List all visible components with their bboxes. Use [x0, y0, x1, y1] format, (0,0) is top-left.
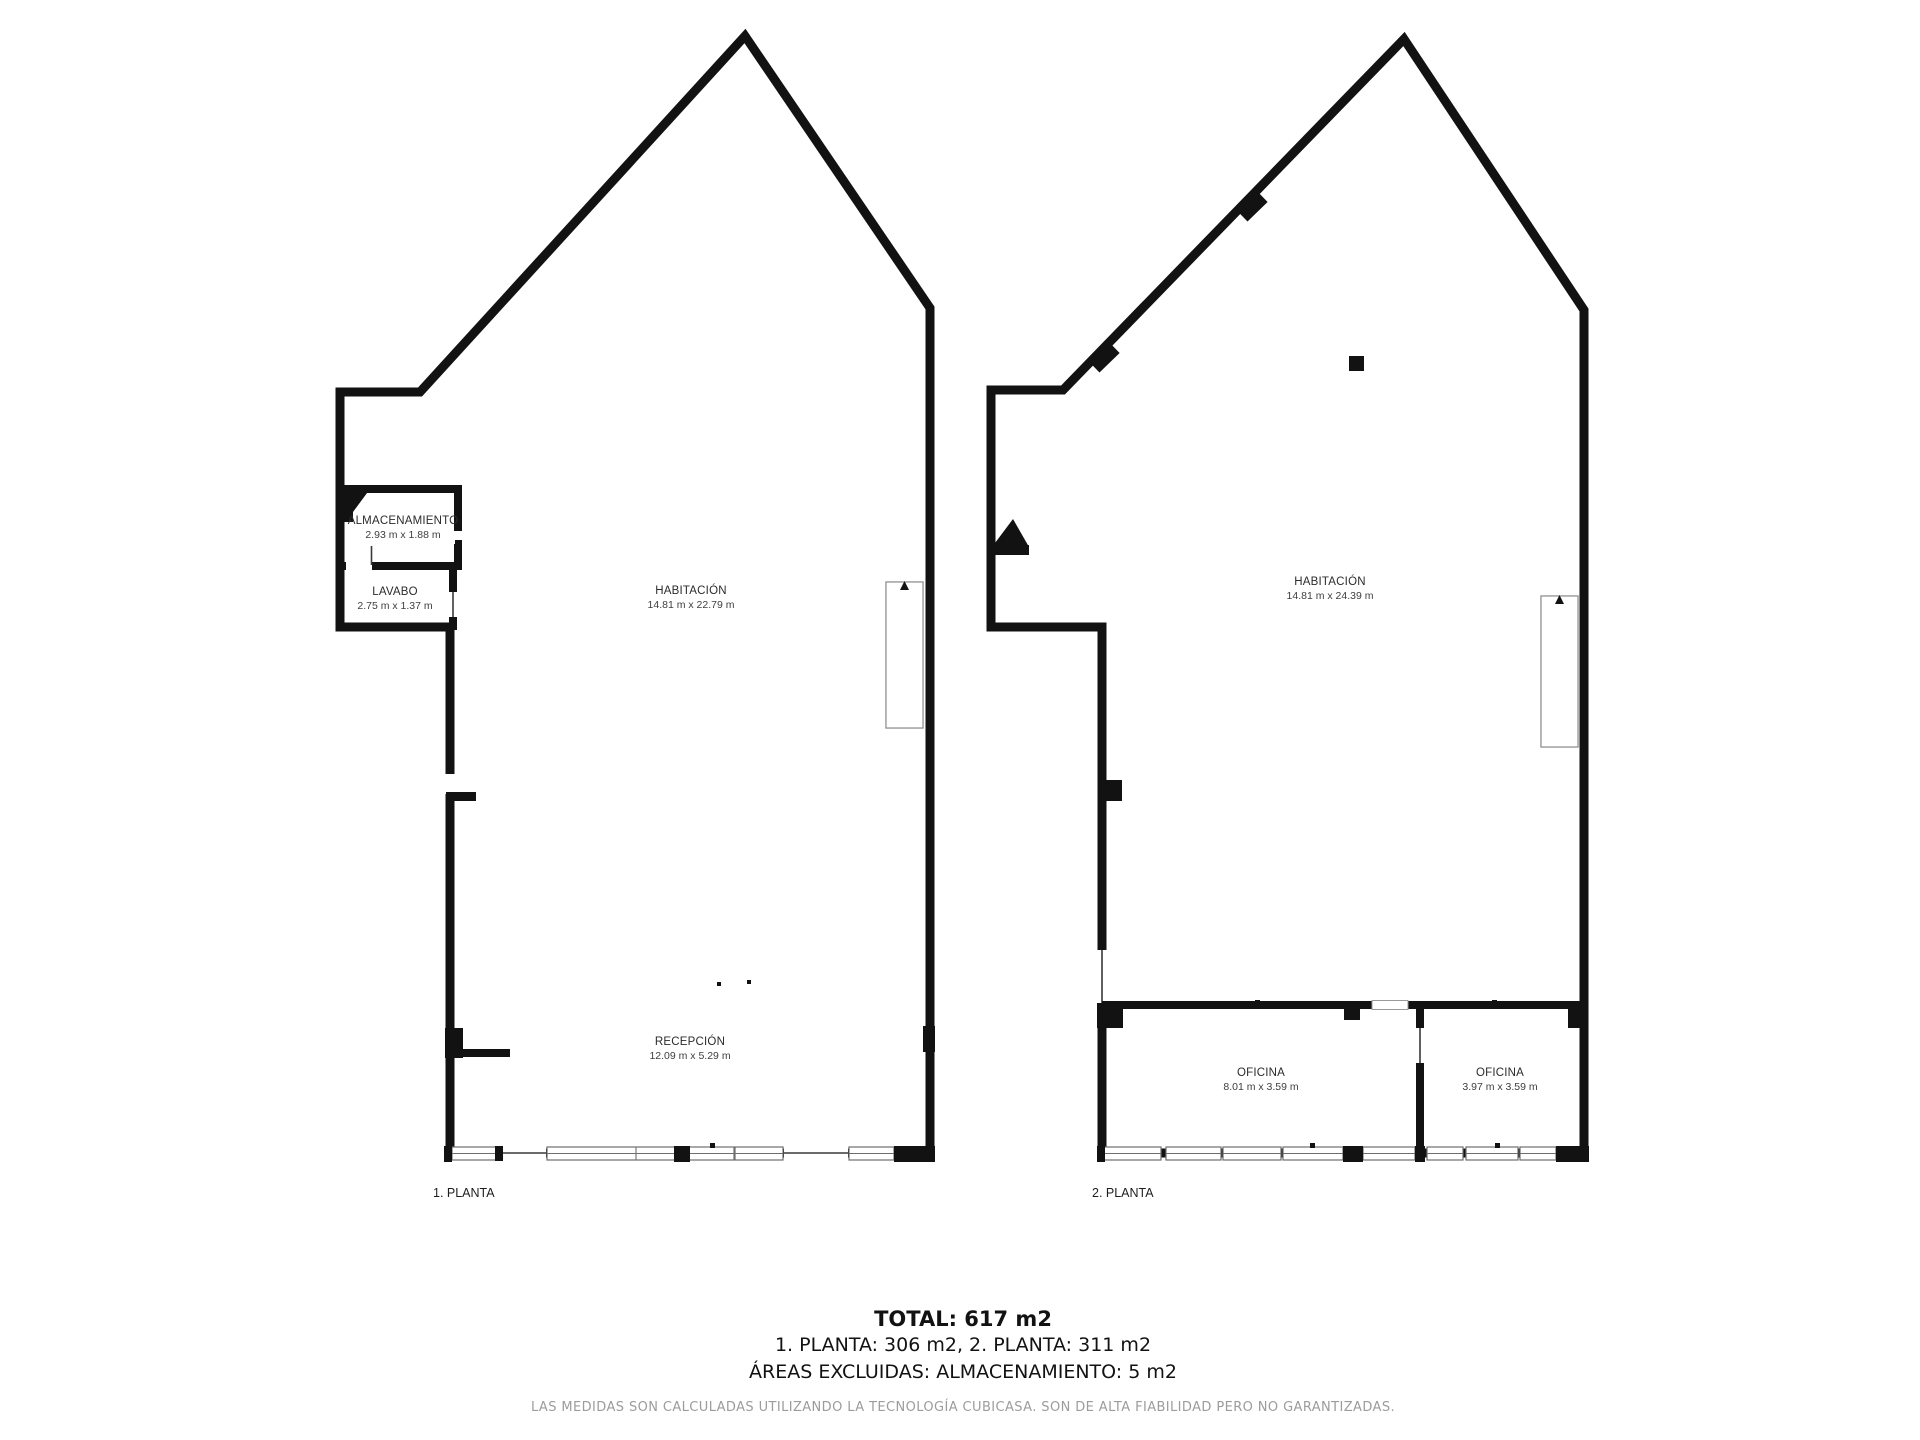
excluded-areas: ÁREAS EXCLUIDAS: ALMACENAMIENTO: 5 m2 [749, 1359, 1177, 1386]
floor1-entry-door [674, 1146, 690, 1162]
total-area: TOTAL: 617 m2 [749, 1306, 1177, 1332]
room-label-oficina-1: OFICINA 8.01 m x 3.59 m [1223, 1066, 1298, 1095]
room-label-habitacion-2: HABITACIÓN 14.81 m x 24.39 m [1287, 575, 1374, 604]
floor2-windows [1104, 1147, 1556, 1160]
floor-plans-canvas [0, 0, 1920, 1440]
room-label-habitacion-1: HABITACIÓN 14.81 m x 22.79 m [648, 584, 735, 613]
stairs-icon [1541, 595, 1578, 747]
floor1-wall-stub [450, 1049, 510, 1057]
floor-label-1: 1. PLANTA [433, 1186, 495, 1200]
floor1-pillar [923, 1026, 935, 1052]
disclaimer-text: LAS MEDIDAS SON CALCULADAS UTILIZANDO LA… [531, 1400, 1395, 1415]
stairs-icon [886, 581, 923, 728]
floor1-door-opening [444, 774, 456, 794]
floor-plan-page: ALMACENAMIENTO 2.93 m x 1.88 m LAVABO 2.… [0, 0, 1920, 1440]
floor-label-2: 2. PLANTA [1092, 1186, 1154, 1200]
room-label-recepcion: RECEPCIÓN 12.09 m x 5.29 m [649, 1035, 730, 1064]
room-label-oficina-2: OFICINA 3.97 m x 3.59 m [1462, 1066, 1537, 1095]
room-label-almacenamiento: ALMACENAMIENTO 2.93 m x 1.88 m [348, 514, 459, 543]
floor-areas: 1. PLANTA: 306 m2, 2. PLANTA: 311 m2 [749, 1332, 1177, 1359]
room-label-lavabo: LAVABO 2.75 m x 1.37 m [357, 585, 432, 614]
area-summary: TOTAL: 617 m2 1. PLANTA: 306 m2, 2. PLAN… [749, 1306, 1177, 1386]
floor2-pillar [1349, 356, 1364, 371]
floor1-wall-stub [446, 792, 476, 801]
floor2-wall-stub [1098, 780, 1122, 801]
door-leaf-icon [1344, 1006, 1360, 1020]
floor2-entry-door [1343, 1146, 1363, 1162]
